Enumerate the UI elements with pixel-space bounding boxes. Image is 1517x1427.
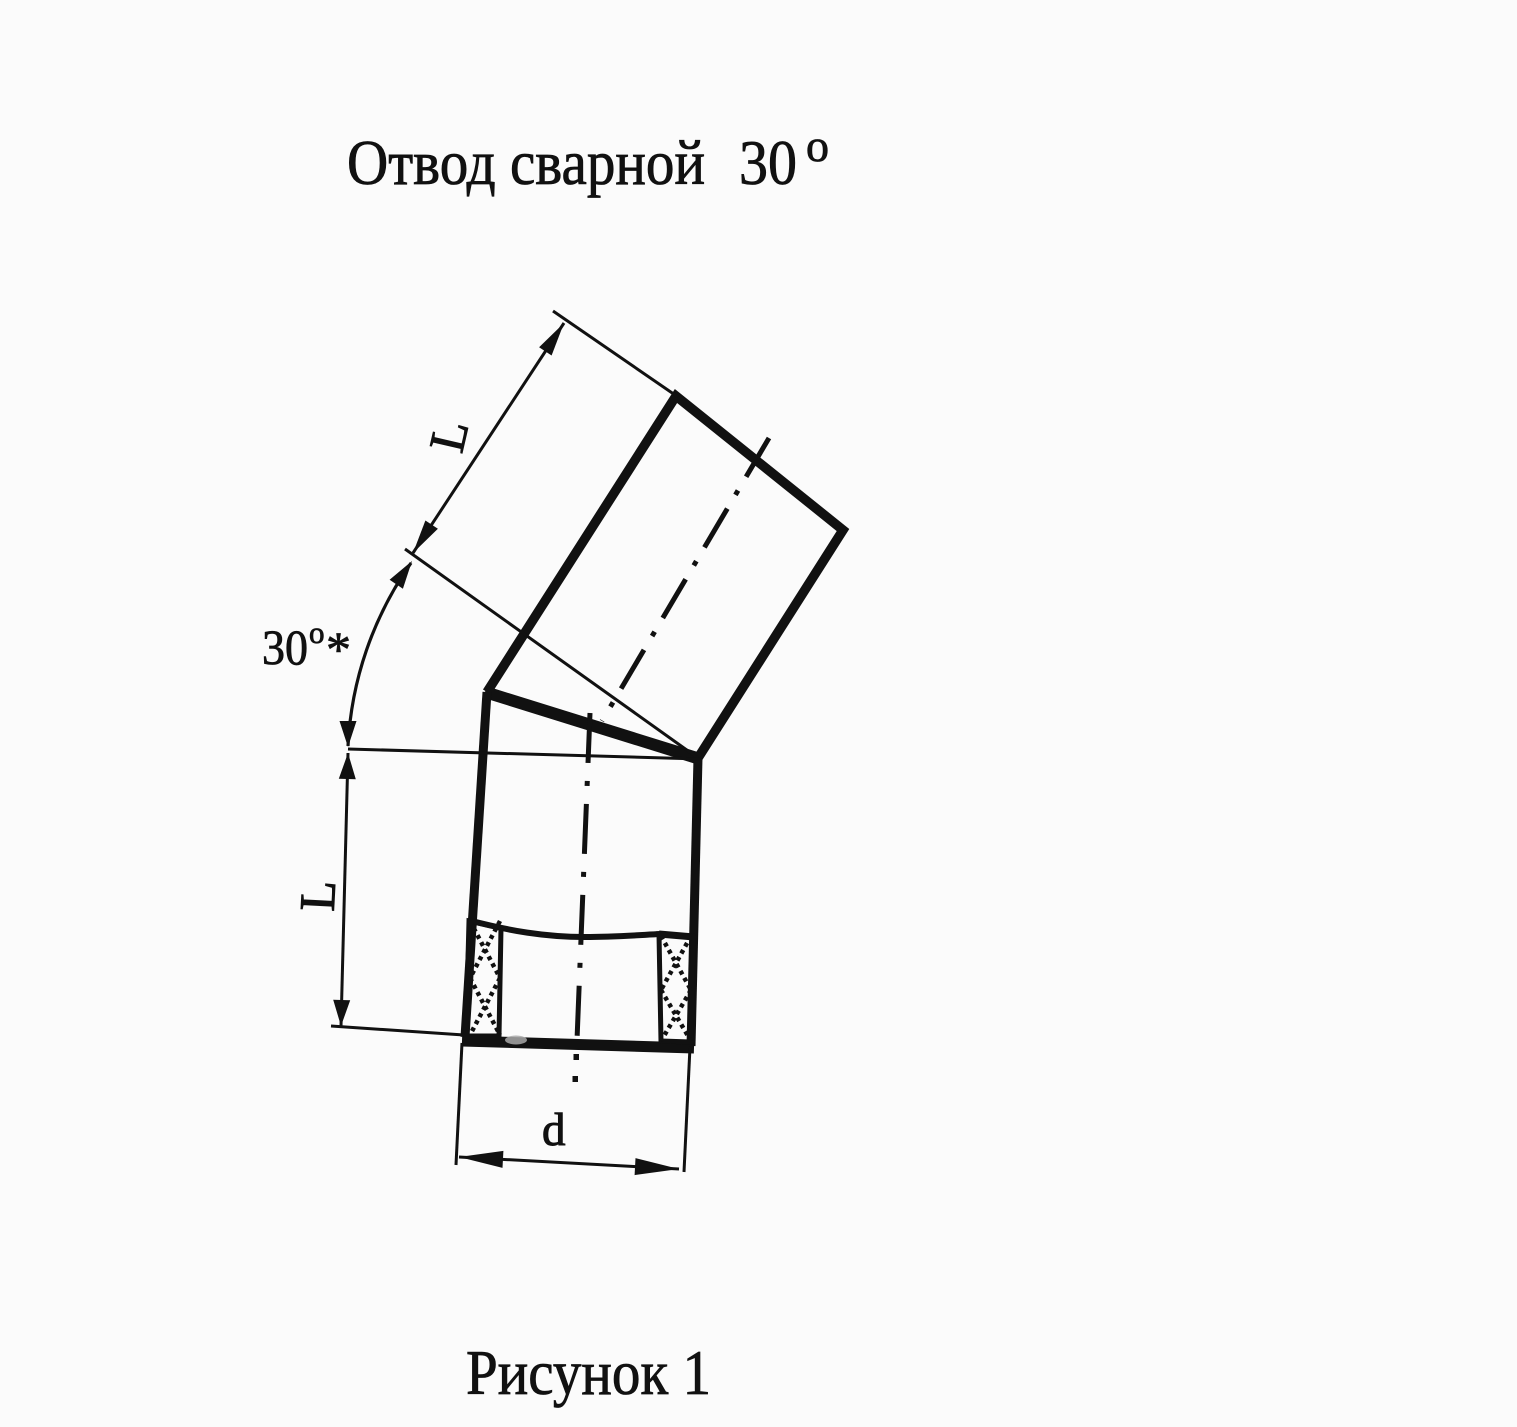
svg-text:o: o — [806, 120, 829, 171]
svg-text:30: 30 — [739, 127, 797, 198]
svg-text:30: 30 — [262, 619, 308, 675]
svg-text:L: L — [418, 415, 479, 457]
svg-text:d: d — [542, 1104, 566, 1156]
svg-text:L: L — [289, 879, 347, 912]
svg-text:Отвод сварной: Отвод сварной — [347, 128, 705, 198]
svg-text:*: * — [326, 621, 351, 677]
svg-text:o: o — [309, 615, 325, 650]
svg-text:Рисунок 1: Рисунок 1 — [466, 1338, 711, 1408]
